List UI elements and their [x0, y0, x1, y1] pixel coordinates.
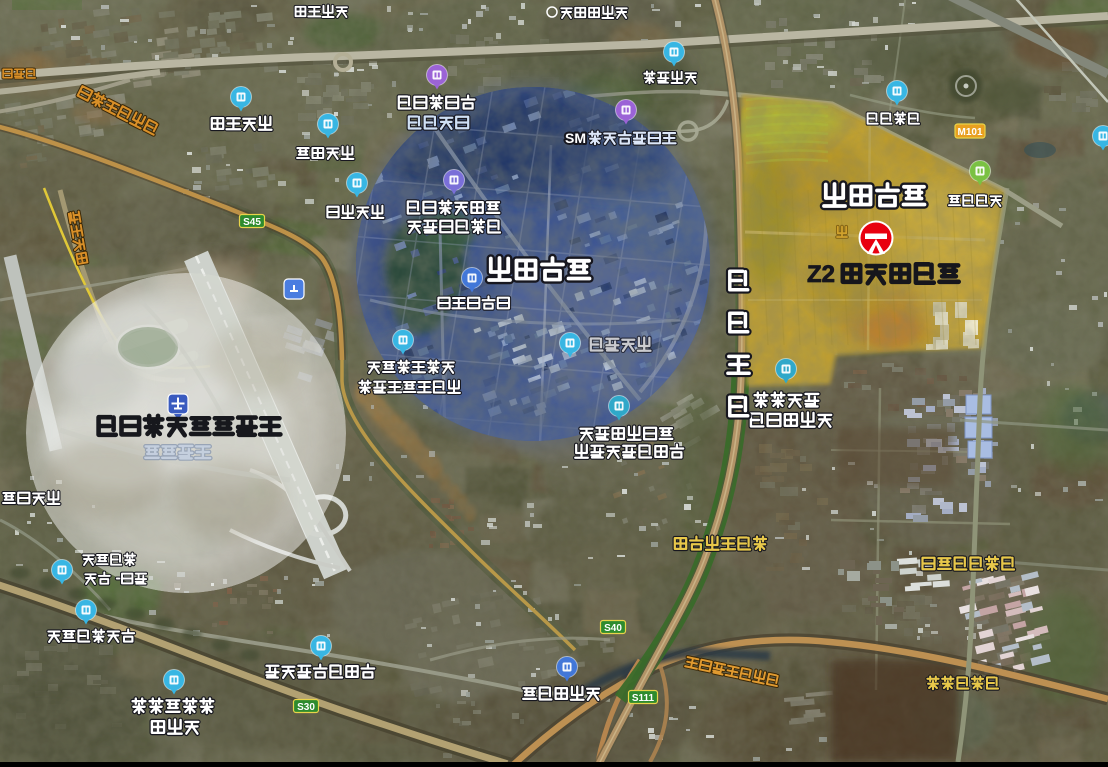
- svg-text:Z2: Z2: [807, 261, 835, 288]
- svg-text:M101: M101: [957, 127, 982, 138]
- svg-text:S40: S40: [604, 623, 622, 634]
- svg-text:S45: S45: [243, 217, 261, 228]
- svg-text:SM: SM: [565, 130, 586, 146]
- svg-text:S30: S30: [297, 702, 315, 713]
- svg-text:S111: S111: [632, 693, 655, 704]
